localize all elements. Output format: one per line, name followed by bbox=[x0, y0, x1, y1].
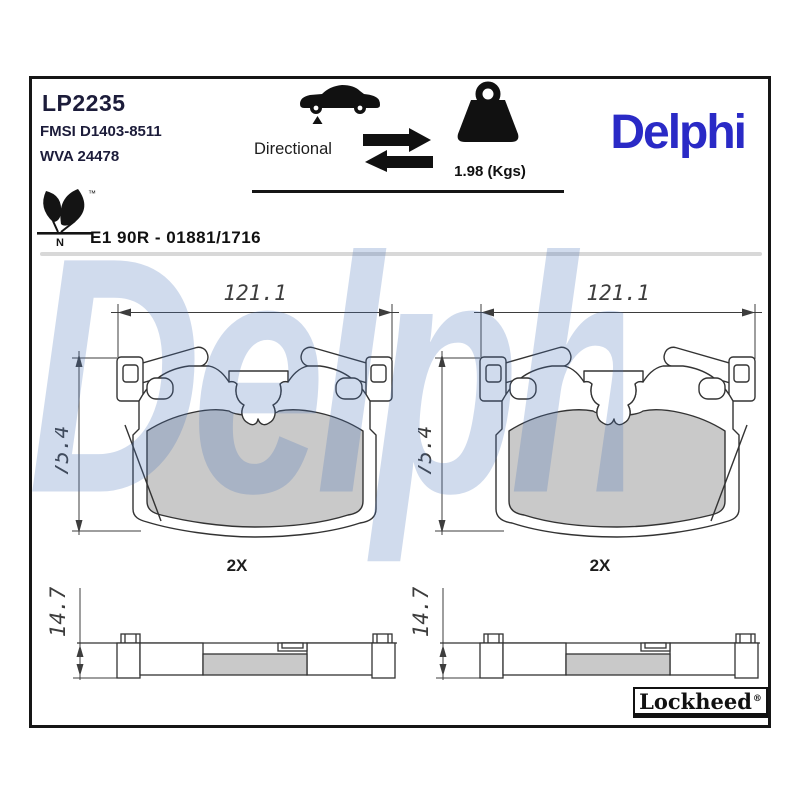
directional-label: Directional bbox=[254, 140, 332, 159]
eco-mark-letter: N bbox=[56, 237, 64, 249]
delphi-brand-logo: Delphi bbox=[610, 105, 745, 160]
weight-icon bbox=[444, 81, 532, 163]
car-icon bbox=[296, 82, 384, 128]
datasheet-frame: LP2235 FMSI D1403-8511 WVA 24478 Directi… bbox=[29, 76, 771, 728]
lockheed-logo: Lockheed® bbox=[633, 687, 768, 718]
registered-symbol: ® bbox=[753, 694, 762, 704]
header-cell-underline bbox=[252, 190, 564, 193]
trademark-symbol: ™ bbox=[88, 189, 96, 198]
datasheet-page: LP2235 FMSI D1403-8511 WVA 24478 Directi… bbox=[0, 0, 800, 800]
wva-reference: WVA 24478 bbox=[40, 148, 119, 165]
part-number: LP2235 bbox=[42, 90, 126, 117]
section-divider bbox=[40, 252, 762, 256]
weight-value: 1.98 (Kgs) bbox=[434, 163, 546, 180]
brake-pad-side-view-left bbox=[45, 582, 405, 687]
lockheed-logo-text: Lockheed bbox=[639, 689, 752, 714]
fmsi-reference: FMSI D1403-8511 bbox=[40, 123, 162, 140]
brake-pad-front-view-right bbox=[418, 283, 768, 578]
brake-pad-front-view-left bbox=[55, 283, 405, 578]
brake-pad-side-view-right bbox=[408, 582, 768, 687]
directional-arrows-icon bbox=[363, 126, 433, 172]
homologation-code: E1 90R - 01881/1716 bbox=[90, 228, 261, 248]
